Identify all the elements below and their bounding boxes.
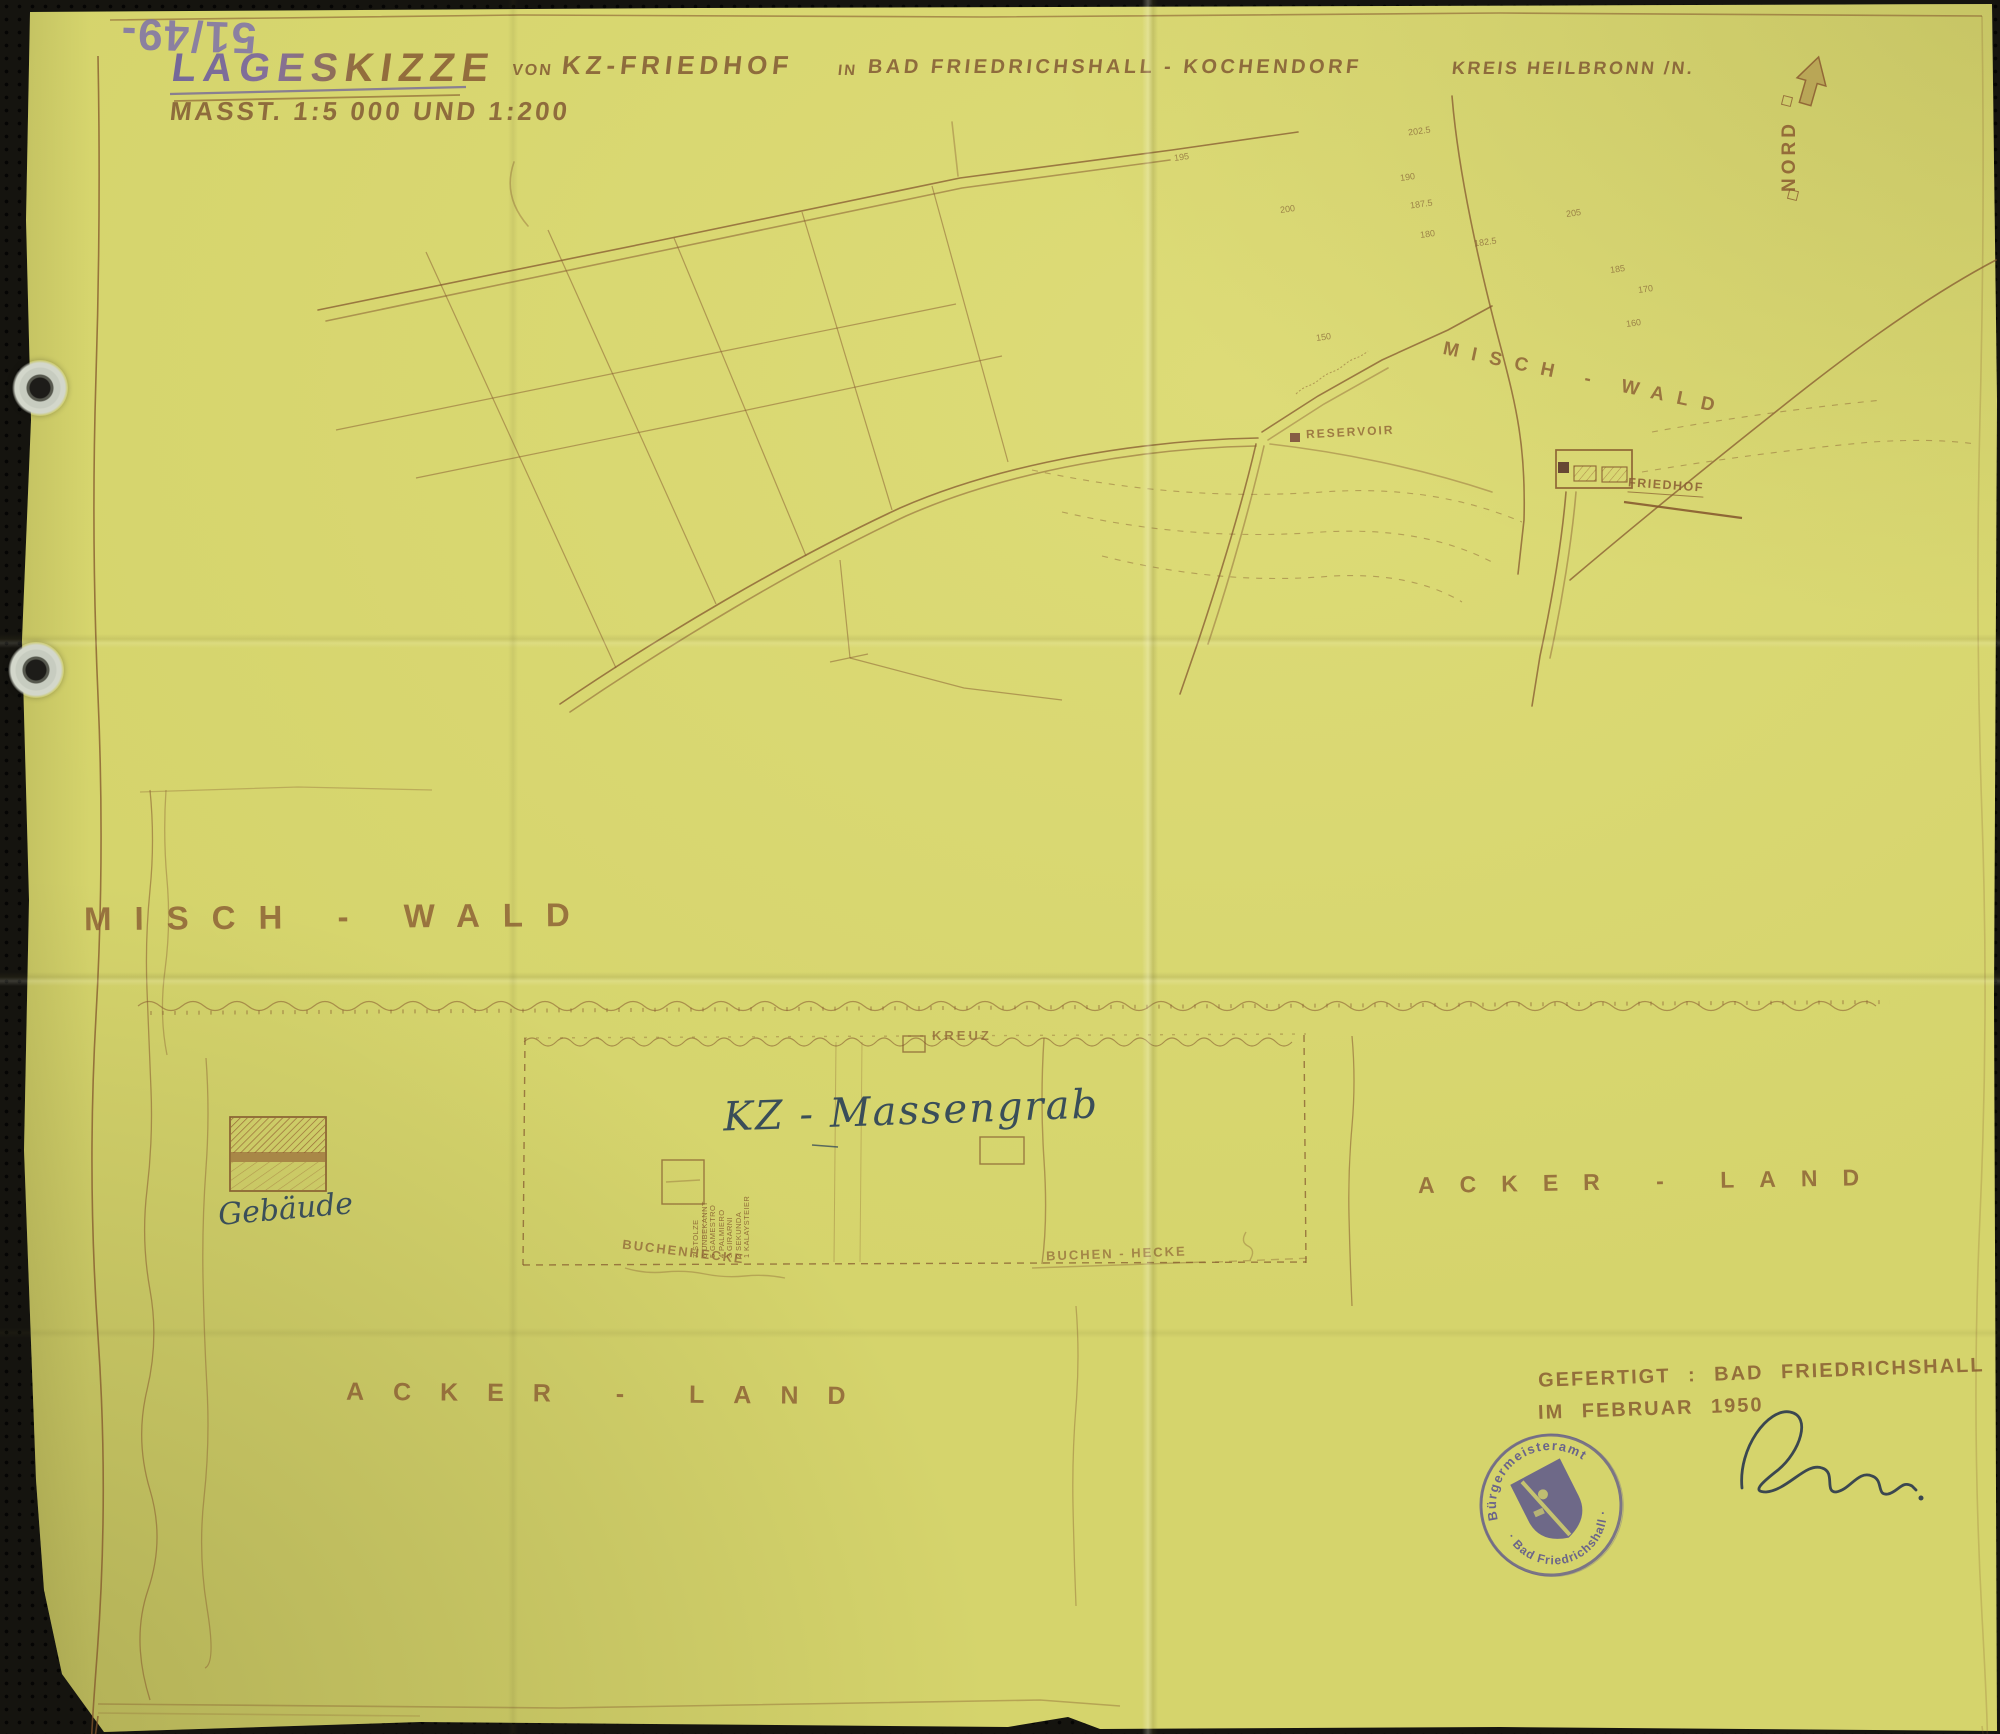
stamp-coat-of-arms	[1509, 1458, 1593, 1551]
field-label-bottom: ACKER - LAND	[346, 1378, 875, 1412]
contour-lines	[1032, 400, 1976, 602]
punch-hole	[12, 360, 68, 416]
elevation-label: 205	[1565, 207, 1581, 219]
scanned-map-sheet: Bürgermeisteramt · Bad Friedrichshall · …	[0, 0, 2000, 1734]
elevation-label: 190	[1399, 171, 1415, 183]
punch-hole	[8, 642, 64, 698]
title-place: BAD FRIEDRICHSHALL - KOCHENDORF	[867, 56, 1363, 79]
municipal-stamp: Bürgermeisteramt · Bad Friedrichshall ·	[1459, 1412, 1646, 1599]
title-connector-von: VON	[511, 62, 554, 80]
elevation-label: 160	[1625, 317, 1641, 329]
grave-list-item: 3 GIRARNI	[725, 1217, 734, 1258]
grave-list-item: 5 GAMESTRO	[708, 1205, 717, 1258]
signature	[1742, 1412, 1924, 1501]
plan-forest-label: MISCH - WALD	[84, 896, 593, 938]
reservoir-symbol	[1290, 433, 1300, 442]
building-hatch	[230, 1117, 326, 1191]
elevation-label: 170	[1637, 283, 1653, 295]
elevation-label: 195	[1173, 151, 1189, 163]
cross-label: KREUZ	[932, 1028, 992, 1043]
elevation-label: 180	[1419, 228, 1435, 240]
sheet-border	[91, 13, 1987, 1734]
map-linework-svg: Bürgermeisteramt · Bad Friedrichshall ·	[0, 0, 2000, 1734]
tree-line	[138, 1002, 1890, 1014]
title-connector-in: IN	[837, 62, 858, 79]
title-subject: KZ-FRIEDHOF	[560, 50, 794, 81]
grave-list-item: 1 KALAYSTEIER	[742, 1196, 751, 1258]
north-label: NORD	[1779, 106, 1807, 192]
scale-note: MASST. 1:5 000 UND 1:200	[168, 96, 571, 127]
elevation-label: 185	[1609, 263, 1625, 275]
north-arrow-icon	[1791, 53, 1833, 108]
field-parcel-lines	[336, 186, 1062, 700]
archive-number: 51/49-	[97, 1, 279, 63]
road-network	[318, 96, 1996, 712]
title-district: KREIS HEILBRONN /N.	[1451, 58, 1696, 79]
elevation-label: 200	[1279, 203, 1295, 215]
grave-list-item: 7 STOLZE	[691, 1220, 700, 1259]
elevation-label: 150	[1315, 331, 1331, 343]
